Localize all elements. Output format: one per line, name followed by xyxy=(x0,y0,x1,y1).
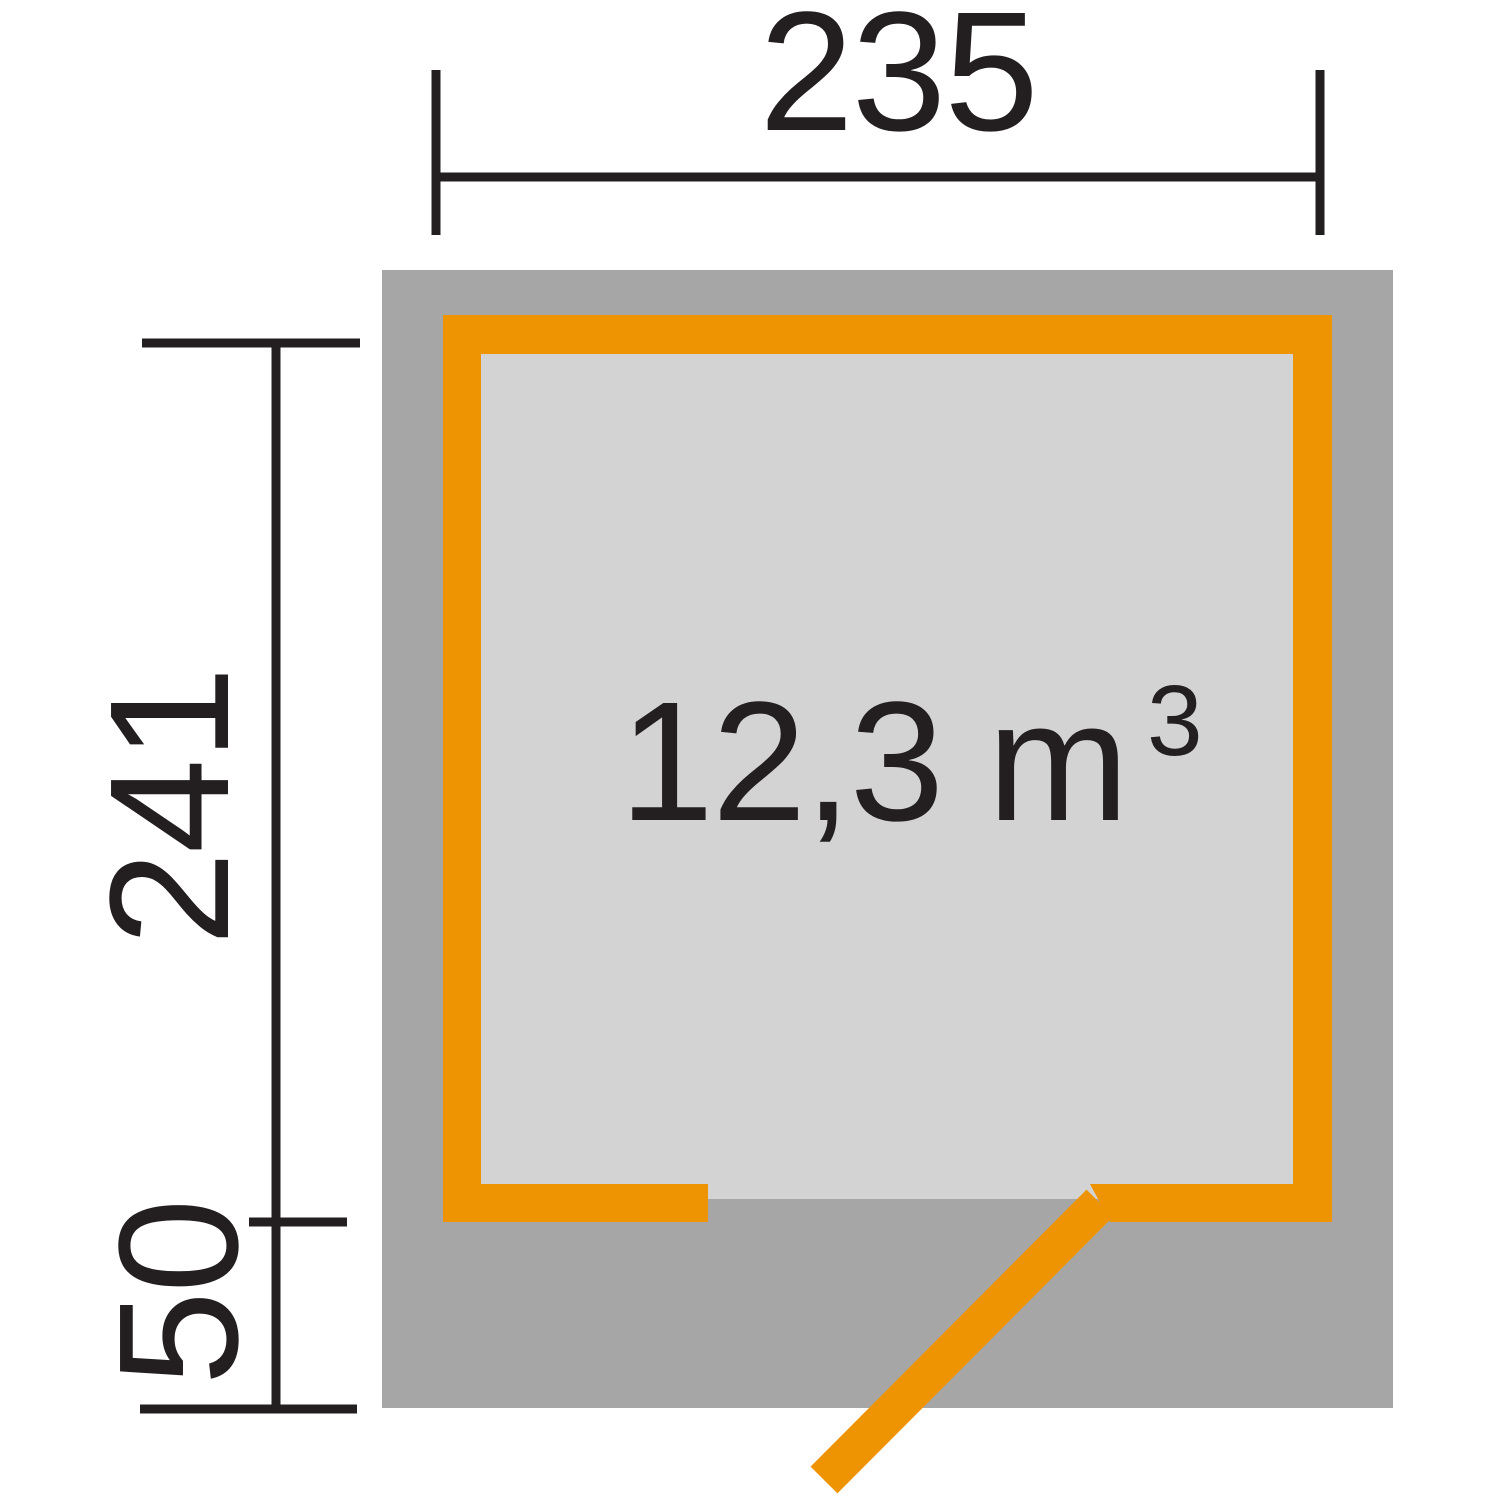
wall-right xyxy=(1293,315,1332,1222)
volume-superscript: 3 xyxy=(1147,665,1201,777)
volume-label: 12,3 m3 xyxy=(619,665,1200,857)
floor-plan-diagram: 235 241 50 12,3 m3 xyxy=(0,0,1500,1500)
wall-left xyxy=(443,315,481,1222)
width-dimension-label: 235 xyxy=(759,0,1037,167)
volume-value: 12,3 m xyxy=(619,667,1127,857)
wall-top xyxy=(443,315,1332,354)
height-dimension-label-group: 241 50 xyxy=(75,668,274,1385)
floor-plan-page: 235 241 50 12,3 m3 xyxy=(0,0,1500,1500)
wall-bottom-right xyxy=(1090,1184,1332,1222)
offset-dimension-label: 50 xyxy=(84,1200,274,1385)
wall-bottom-left xyxy=(443,1184,708,1222)
width-dimension-label-group: 235 xyxy=(759,0,1037,167)
height-dimension-label: 241 xyxy=(75,668,265,946)
volume-label-group: 12,3 m3 xyxy=(619,665,1200,857)
